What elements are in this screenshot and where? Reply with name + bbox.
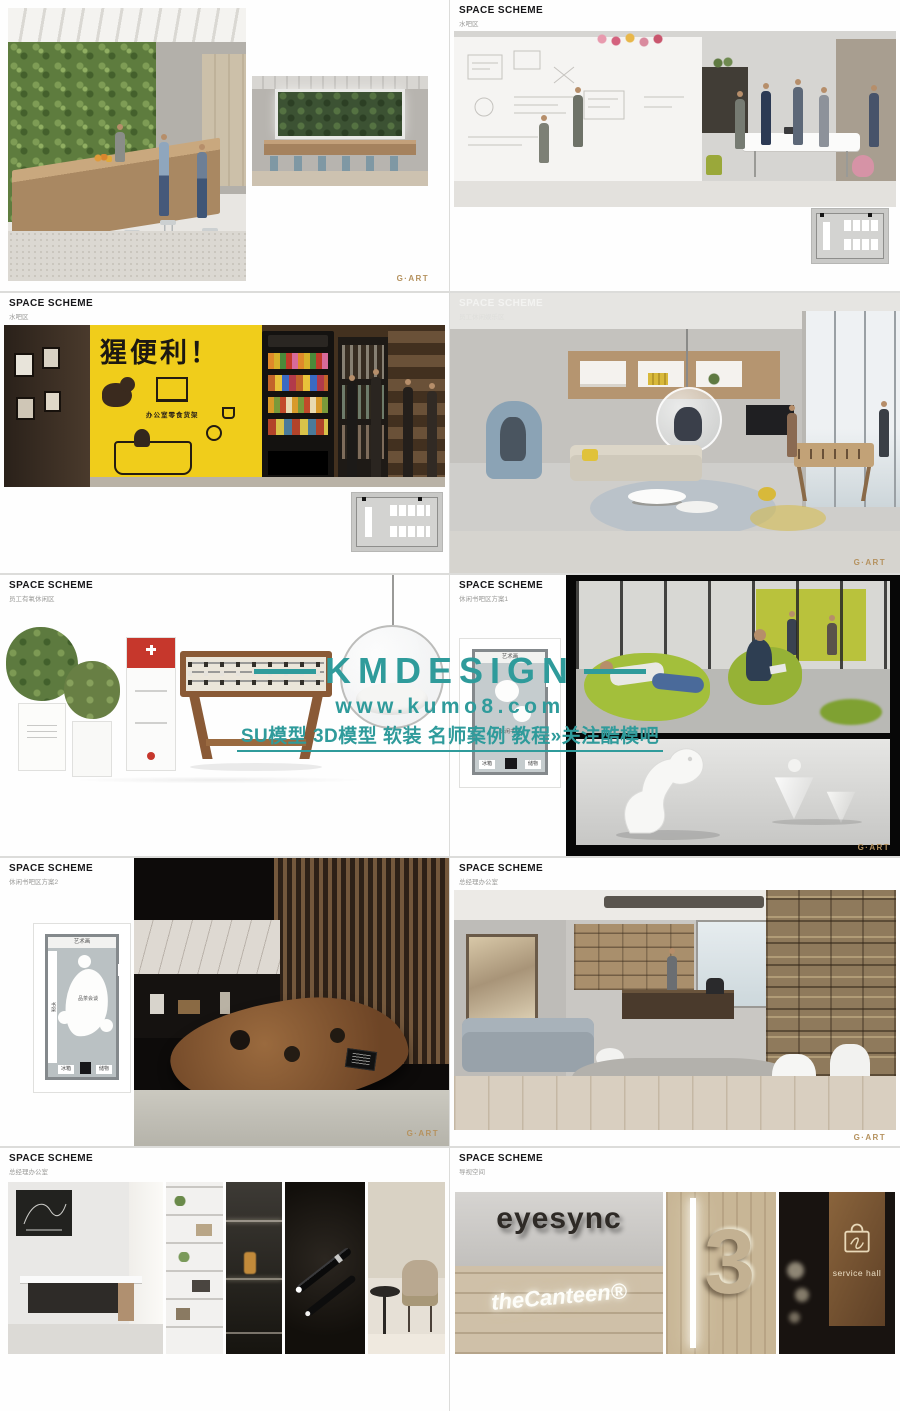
chair-legs [408, 1306, 432, 1332]
spinning-top-vase [772, 767, 816, 819]
table-leg [846, 151, 848, 177]
wall-art-sketch [16, 1190, 72, 1236]
slide-header: SPACE SCHEME 水吧区 [9, 298, 93, 321]
pen-silver-band [334, 1254, 343, 1263]
photo-executive-office [454, 890, 896, 1130]
service-hall-label: service hall [829, 1268, 885, 1278]
potted-plant [62, 661, 122, 781]
gart-logo: G·ART [854, 558, 886, 567]
slide-header: SPACE SCHEME 员工休闲娱乐区 [459, 298, 543, 321]
shelf-lines [166, 1182, 223, 1354]
person-in-bubble [674, 407, 702, 441]
plan-dark-gap [80, 1062, 91, 1074]
first-aid-cabinet [126, 637, 176, 771]
plan-door-notch [546, 673, 554, 687]
sitting-person-head [754, 629, 766, 641]
plan-bookshelf: 书架 [48, 951, 57, 1063]
plant-pot [72, 721, 112, 777]
plan-cabinet [823, 222, 830, 250]
slide-title: SPACE SCHEME [459, 298, 543, 309]
foosball-rod [188, 671, 324, 676]
person-figure [878, 401, 890, 457]
plan-door [868, 213, 872, 217]
fruit-bowl [94, 154, 112, 162]
plant [712, 57, 736, 69]
moodboard-shadow [10, 775, 430, 785]
shelf-box [176, 1308, 190, 1320]
bubble-cushion [356, 683, 428, 715]
slide-header: SPACE SCHEME 总经理办公室 [9, 1153, 93, 1176]
cabinet-red-dot [147, 752, 155, 760]
snack-shelf [268, 375, 328, 391]
shelf-plant [178, 1252, 190, 1262]
photo-office-desk [8, 1182, 163, 1354]
marble-shelf [134, 920, 280, 974]
photo-bean-bag-lounge [576, 581, 890, 733]
shelf-plant [174, 1196, 186, 1206]
upholstered-chair [402, 1260, 438, 1306]
desk-top [20, 1276, 142, 1283]
plan-room: 艺术画 休闲书吧 冰箱 储物 [472, 649, 548, 775]
foosball-rod [188, 680, 324, 685]
slide-header: SPACE SCHEME 导视空间 [459, 1153, 543, 1176]
slide-staff-leisure-lounge[interactable]: SPACE SCHEME 员工休闲娱乐区 G·ART [450, 293, 900, 573]
floor [450, 531, 900, 573]
slide-title: SPACE SCHEME [9, 1153, 93, 1164]
couch-line-art [114, 441, 192, 475]
snack-shelf [268, 397, 328, 413]
plan-door-notch [118, 964, 125, 976]
cabinet-slot [135, 722, 167, 724]
floor [368, 1334, 445, 1354]
photo-collage-dark: G·ART [566, 575, 900, 856]
plan-door [418, 497, 422, 501]
floor [8, 1324, 163, 1354]
plan-door [362, 497, 366, 501]
plan-label-tea: 品茶会谈 [62, 995, 114, 1002]
slide-subtitle: 导视空间 [459, 1166, 543, 1176]
plan-seat [58, 1011, 71, 1024]
person-figure [538, 115, 550, 163]
person-figure [196, 144, 208, 218]
amber-object [244, 1252, 256, 1274]
person-figure [426, 383, 438, 479]
plant-pot [18, 703, 66, 771]
book-text-lines [351, 1053, 370, 1065]
vending-machine [262, 331, 334, 481]
metal-shelf-edge [226, 1220, 282, 1222]
slide-subtitle: 总经理办公室 [459, 876, 543, 886]
bubble-chair-cord [392, 575, 394, 625]
shopping-bag-icon [839, 1220, 875, 1256]
plant [708, 373, 720, 385]
cup-line-art [222, 407, 235, 419]
foosball-table [794, 443, 874, 467]
clock-line-art [206, 425, 222, 441]
foosball-shadow [190, 763, 322, 771]
person-figure [760, 83, 772, 145]
coffee-table [676, 501, 718, 513]
sitting-person [746, 639, 772, 681]
person-on-couch [134, 429, 150, 447]
store-sign-text: 猩便利！ [100, 331, 220, 370]
foosball-rods [798, 449, 870, 459]
bowl [230, 1030, 250, 1050]
store-caption-text: 办公室零食货架 [146, 409, 199, 419]
foosball-leg [189, 697, 212, 759]
person-figure [818, 87, 830, 147]
foosball-rod [188, 662, 324, 667]
terrazzo-floor [8, 231, 246, 281]
wing-chair [486, 401, 542, 479]
slide-subtitle: 员工休闲娱乐区 [459, 311, 543, 321]
slide-water-bar-photos[interactable]: G·ART [0, 0, 449, 291]
sketch-lines [16, 1190, 72, 1236]
shelf-line-art [156, 377, 188, 402]
sculpture-shadow [772, 819, 862, 825]
bowl [330, 1028, 345, 1043]
person-figure [734, 91, 746, 149]
contact-sheet: G·ART SPACE SCHEME 水吧区 [0, 0, 900, 1411]
bowl [284, 1046, 300, 1062]
photo-floor-number-sign: 3 [666, 1192, 776, 1354]
plan-label-storage: 储物 [96, 1065, 112, 1074]
shelf-niche [580, 361, 626, 387]
person-figure [346, 375, 358, 479]
plan-desk-cluster [390, 526, 430, 537]
yellow-feature-wall: 猩便利！ 办公室零食货架 [90, 325, 262, 487]
floor-plan-thumbnail [812, 209, 888, 263]
plan-seat [78, 955, 91, 968]
shelf-object [150, 994, 164, 1014]
ceiling-cove [604, 896, 764, 908]
bokeh-light [787, 1262, 804, 1279]
slide-subtitle: 休闲书吧区方案1 [459, 593, 543, 603]
desk-wood-side [118, 1283, 134, 1321]
person-figure [370, 369, 382, 479]
photo-guest-chair [368, 1182, 445, 1354]
slide-gm-office-moodboard[interactable]: SPACE SCHEME 总经理办公室 [0, 1148, 449, 1411]
shelf-box [196, 1224, 212, 1236]
plan-desk-cluster [390, 505, 430, 516]
person-figure [402, 379, 414, 479]
black-book [345, 1048, 377, 1071]
gart-logo: G·ART [397, 274, 429, 283]
photo-shelving [166, 1182, 223, 1354]
shelf-object [178, 1000, 200, 1014]
person-in-wing-chair [500, 417, 526, 461]
floor [90, 477, 445, 487]
slide-title: SPACE SCHEME [9, 298, 93, 309]
shelf-box [192, 1280, 210, 1292]
slide-leisure-library-plan1[interactable]: SPACE SCHEME 休闲书吧区方案1 艺术画 休闲书吧 冰箱 储物 [450, 575, 900, 856]
wood-hanging-sign: service hall [829, 1192, 885, 1326]
shelf-object [220, 992, 230, 1014]
person-figure [114, 124, 126, 162]
slide-subtitle: 员工有氧休闲区 [9, 593, 93, 603]
bokeh-light [795, 1288, 809, 1302]
slide-subtitle: 水吧区 [9, 311, 93, 321]
foosball-leg [299, 697, 322, 759]
plan-bean-bag [495, 680, 519, 702]
slide-header: SPACE SCHEME 休闲书吧区方案1 [459, 580, 543, 603]
ceiling [252, 76, 428, 89]
wood-floor [252, 171, 428, 186]
gray-sofa [462, 1018, 594, 1072]
plan-door [820, 213, 824, 217]
hanging-bubble-chair [656, 387, 722, 453]
plan-label-art: 艺术画 [475, 652, 545, 663]
floor-plan-leisure-library-2: 艺术画 书架 品茶会谈 冰箱 储物 [34, 924, 130, 1092]
snack-shelf [268, 353, 328, 369]
slide-subtitle: 水吧区 [459, 18, 543, 28]
photo-eyesync-sign: eyesync theCanteen® [455, 1192, 663, 1354]
foosball-table [180, 651, 332, 773]
pink-shell-chair [852, 155, 874, 177]
photo-green-wall-cafe [8, 8, 246, 281]
cabinet-slot [135, 690, 167, 692]
metal-shelf-edge [226, 1332, 282, 1334]
plan-label-fridge: 冰箱 [479, 760, 495, 769]
slide-subtitle: 休闲书吧区方案2 [9, 876, 93, 886]
photo-horse-sculpture [576, 739, 890, 845]
person-figure [786, 405, 798, 457]
gart-logo: G·ART [407, 1129, 439, 1138]
plan-bean-bag [513, 706, 531, 722]
slide-water-bar-workshop[interactable]: SPACE SCHEME 水吧区 [450, 0, 900, 291]
bubble-chair-cord [686, 329, 688, 387]
metal-shelf-edge [226, 1278, 282, 1280]
slide-header: SPACE SCHEME 休闲书吧区方案2 [9, 863, 93, 886]
slide-title: SPACE SCHEME [9, 863, 93, 874]
photo-dark-shelf-detail [226, 1182, 282, 1354]
person-figure [158, 134, 170, 216]
slide-signage[interactable]: SPACE SCHEME 导视空间 eyesync theCanteen® 3 [450, 1148, 900, 1411]
slide-leisure-furniture-moodboard[interactable]: SPACE SCHEME 员工有氧休闲区 [0, 575, 449, 856]
photo-bar-counter [252, 76, 428, 186]
spinning-top-vase [824, 783, 858, 823]
yellow-pillow [582, 449, 598, 461]
photo-collaboration-space [454, 31, 896, 207]
person-figure [868, 85, 880, 147]
foosball-crossbar [206, 739, 306, 746]
floor [454, 181, 896, 207]
hanging-bubble-chair [340, 625, 444, 729]
photo-leisure-lounge [450, 293, 900, 573]
gart-logo: G·ART [854, 1133, 886, 1142]
dispenser-slot [268, 451, 328, 475]
slide-gm-office[interactable]: SPACE SCHEME 总经理办公室 G·ART [450, 858, 900, 1146]
person-figure [792, 79, 804, 145]
picture-frame [42, 347, 60, 369]
sticky-notes [596, 33, 666, 49]
horse-sculpture [602, 745, 752, 841]
picture-frame [16, 397, 35, 420]
yellow-rug [750, 505, 826, 531]
right-bookshelf-wall [766, 890, 896, 1076]
plan-label-storage: 储物 [525, 760, 541, 769]
slide-title: SPACE SCHEME [459, 5, 543, 16]
green-chair [706, 155, 722, 175]
slide-title: SPACE SCHEME [459, 863, 543, 874]
slide-title: SPACE SCHEME [9, 580, 93, 591]
yellow-books [648, 373, 668, 385]
plan-label-art: 艺术画 [48, 937, 116, 948]
floor-plan-thumbnail [352, 493, 442, 551]
plan-label-center: 休闲书吧 [475, 728, 545, 735]
counter [264, 140, 416, 155]
plan-cabinet [365, 507, 372, 537]
lying-person-head [600, 661, 613, 674]
mascot-bear-head [120, 377, 135, 392]
slide-snack-store[interactable]: SPACE SCHEME 水吧区 猩便利！ 办公室零食货架 [0, 293, 449, 573]
plan-room: 艺术画 书架 品茶会谈 冰箱 储物 [45, 934, 119, 1080]
photo-snack-store: 猩便利！ 办公室零食货架 [4, 325, 445, 487]
photo-service-hall-sign: service hall [779, 1192, 895, 1354]
executive-desk [622, 990, 734, 1019]
slide-header: SPACE SCHEME 水吧区 [459, 5, 543, 28]
plan-seat [100, 1019, 113, 1032]
green-wall-panel [278, 92, 402, 136]
pen-star-cap [295, 1285, 303, 1293]
stool-row [270, 156, 410, 172]
plan-label-fridge: 冰箱 [58, 1065, 74, 1074]
pot-label-lines [27, 724, 57, 738]
bokeh-light [789, 1312, 800, 1323]
spinning-top-knob [788, 759, 801, 772]
slide-leisure-library-plan2[interactable]: SPACE SCHEME 休闲书吧区方案2 艺术画 书架 品茶会谈 冰箱 储物 [0, 858, 449, 1146]
floor-plan-leisure-library-1: 艺术画 休闲书吧 冰箱 储物 [460, 639, 560, 787]
desk-chair [706, 978, 724, 994]
floor [134, 1090, 449, 1146]
table-leg [383, 1294, 386, 1334]
slide-title: SPACE SCHEME [459, 1153, 543, 1164]
photo-tea-lounge: G·ART [134, 858, 449, 1146]
green-shag-rug [820, 699, 882, 725]
photo-luxury-pens [285, 1182, 365, 1354]
pen-star-cap [304, 1310, 311, 1317]
slide-title: SPACE SCHEME [459, 580, 543, 591]
person-figure [572, 87, 584, 147]
slide-header: SPACE SCHEME 员工有氧休闲区 [9, 580, 93, 603]
coffee-table [628, 489, 686, 504]
eyesync-lettering: eyesync [455, 1202, 663, 1236]
picture-frame [14, 353, 34, 377]
wood-floor [454, 1076, 896, 1130]
light-strip [690, 1198, 696, 1348]
slide-subtitle: 总经理办公室 [9, 1166, 93, 1176]
plan-desk-cluster [844, 239, 878, 250]
slide-header: SPACE SCHEME 总经理办公室 [459, 863, 543, 886]
cross-icon [150, 645, 153, 655]
table-leg [754, 151, 756, 177]
snack-shelf [268, 419, 328, 435]
vending-header [268, 335, 328, 347]
yellow-pouf [758, 487, 776, 501]
plan-desk-cluster [844, 220, 878, 231]
picture-frame [44, 391, 61, 412]
gart-logo: G·ART [858, 843, 890, 852]
floor-number: 3 [704, 1210, 755, 1315]
plan-dark-gap [505, 758, 517, 769]
plant-foliage [64, 661, 120, 719]
